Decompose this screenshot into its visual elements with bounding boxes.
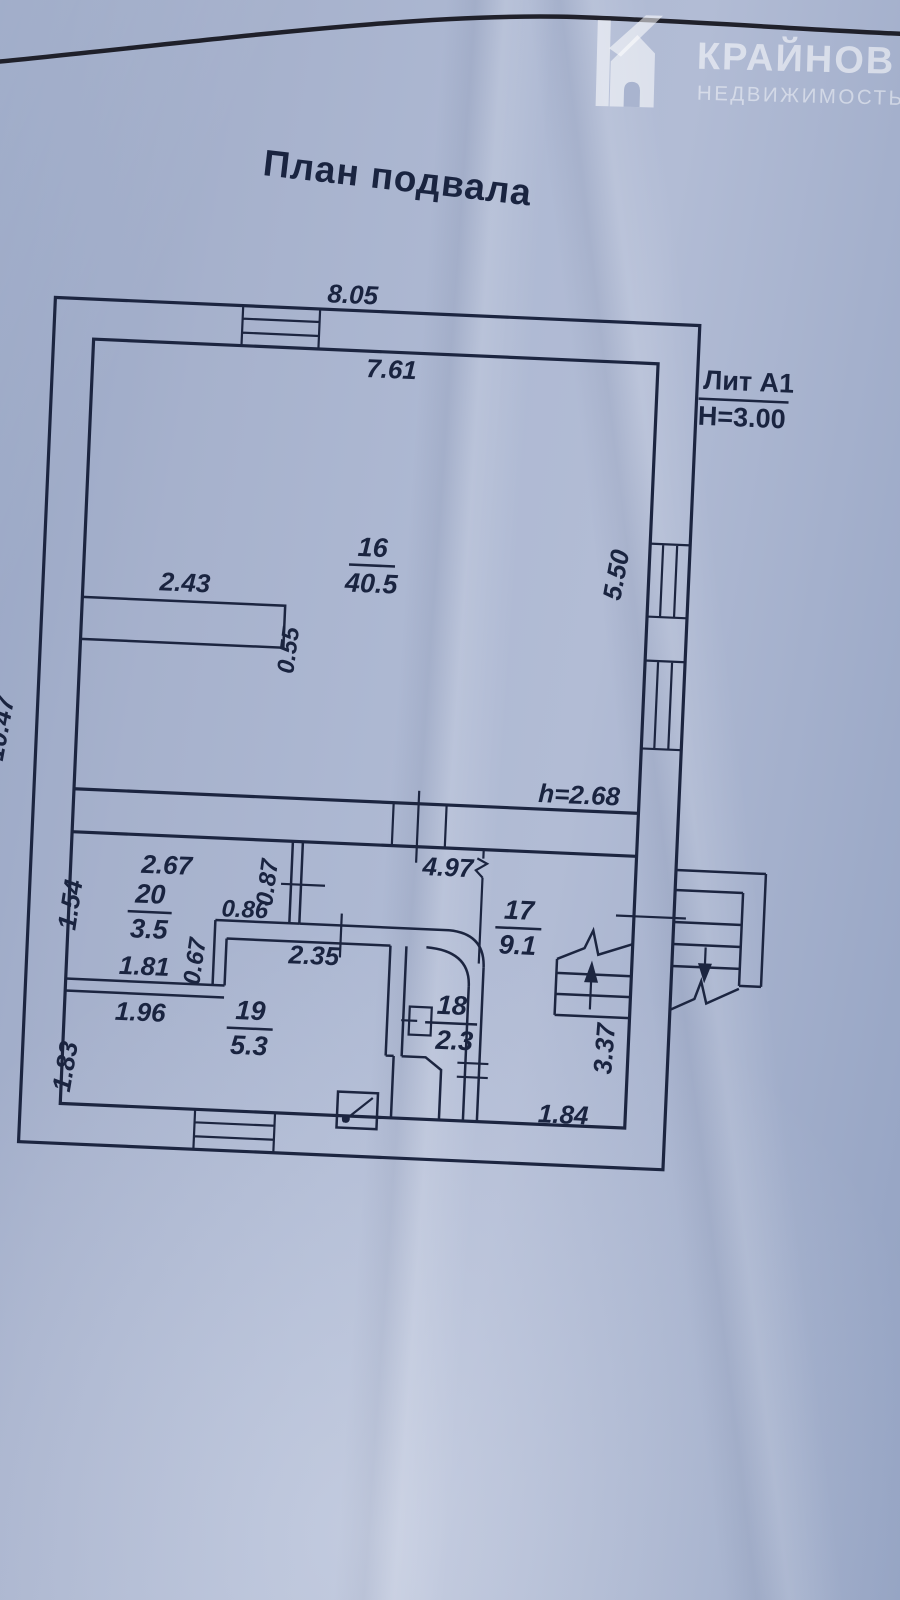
lit-annotation: Лит А1 Н=3.00: [697, 365, 795, 435]
dim-top-inner: 7.61: [366, 353, 418, 385]
window-bottom: [193, 1109, 275, 1152]
window-right-upper: [647, 544, 690, 619]
sump-symbol: [336, 1092, 378, 1130]
floor-plan-photo: КРАЙНОВ НЕДВИЖИМОСТЬ План подвала: [0, 0, 900, 1600]
dim-niche-width: 0.86: [221, 895, 269, 924]
paper-background: КРАЙНОВ НЕДВИЖИМОСТЬ План подвала: [0, 0, 900, 1600]
dim-stair-depth: 3.37: [587, 1021, 621, 1075]
partition-stub-room16: [81, 597, 286, 648]
building-height-label: Н=3.00: [697, 401, 786, 435]
room-17-area: 9.1: [498, 929, 537, 961]
room-20-number: 20: [134, 878, 166, 909]
floor-plan: Лит А1 Н=3.00 16 40.5 20 3.5 19 5.3 18 2…: [0, 264, 798, 1174]
room-19-area: 5.3: [230, 1030, 269, 1062]
dim-room20-top: 2.67: [140, 849, 194, 881]
dim-room19-top: 1.96: [114, 996, 166, 1028]
room-16-area: 40.5: [343, 567, 399, 599]
dim-left-total: 10.47: [0, 692, 21, 763]
dim-room19-left: 1.83: [46, 1039, 84, 1094]
room-18-area: 2.3: [434, 1025, 474, 1057]
room-18-number: 18: [436, 990, 467, 1021]
lit-label: Лит А1: [703, 365, 795, 399]
brand-wordmark: КРАЙНОВ: [696, 33, 896, 83]
dim-bottom-right: 1.84: [537, 1098, 589, 1130]
stairs-exterior: [670, 870, 766, 1014]
room-16-number: 16: [357, 532, 389, 563]
dim-room20-bottom: 1.81: [118, 950, 170, 982]
dim-right-upper: 5.50: [597, 547, 636, 603]
brand-logo: КРАЙНОВ НЕДВИЖИМОСТЬ: [596, 14, 900, 114]
dim-top-outer: 8.05: [327, 278, 379, 310]
window-top: [241, 306, 320, 349]
window-right-lower: [641, 661, 685, 751]
dim-stub-thickness: 0.55: [272, 625, 305, 675]
dim-stub-length: 2.43: [158, 566, 211, 598]
room-20-area: 3.5: [130, 913, 170, 945]
room-17-number: 17: [503, 895, 536, 926]
dim-ceiling-height: h=2.68: [538, 778, 621, 812]
house-k-icon: [596, 14, 663, 108]
page-title: План подвала: [261, 142, 534, 213]
dim-room20-left: 1.54: [51, 877, 88, 932]
dim-room20-right: 0.67: [178, 935, 212, 987]
brand-subtitle: НЕДВИЖИМОСТЬ: [697, 82, 900, 110]
room-labels: 16 40.5 20 3.5 19 5.3 18 2.3 17 9.1: [121, 523, 558, 1074]
stairs-interior: [555, 929, 634, 1018]
dim-corridor: 2.35: [287, 939, 340, 971]
room-19-number: 19: [235, 995, 266, 1026]
dim-mid-width: 4.97: [421, 851, 475, 883]
